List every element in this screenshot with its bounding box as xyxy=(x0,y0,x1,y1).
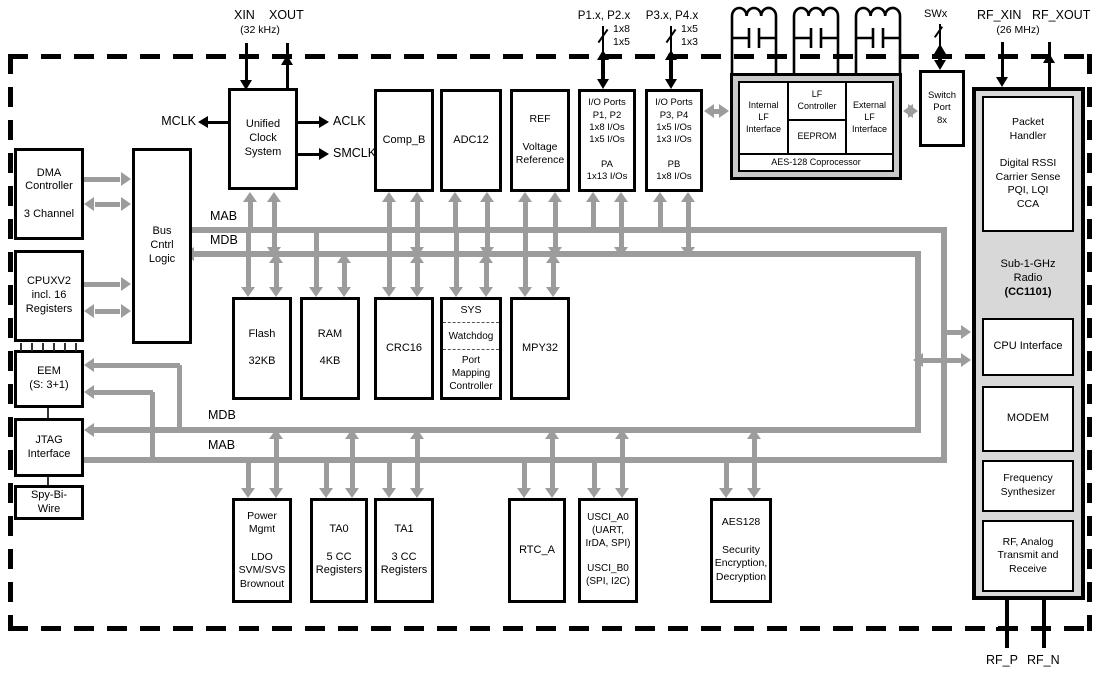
xin-pin-label: XIN xyxy=(234,8,255,22)
cpu-eem-tick xyxy=(64,343,66,351)
lf-aes-module-row: Internal LF Interface LF Controller EEPR… xyxy=(740,83,892,153)
arrowhead xyxy=(479,287,493,297)
chip-border-top xyxy=(8,54,1088,59)
wire xyxy=(1001,42,1004,82)
wire xyxy=(1042,600,1046,648)
usci-block: USCI_A0 (UART, IrDA, SPI) USCI_B0 (SPI, … xyxy=(578,498,638,603)
block-diagram: MAB MDB MDB MAB XIN XOUT (32 kHz) P1.x, … xyxy=(0,0,1100,677)
arrowhead xyxy=(449,287,463,297)
arrowhead xyxy=(269,253,283,263)
cpu-eem-tick xyxy=(20,343,22,351)
xtal-freq-label: (32 kHz) xyxy=(229,24,291,36)
rf-xout-pin-label: RF_XOUT xyxy=(1032,8,1090,22)
lf-controller-block: LF Controller xyxy=(789,83,845,121)
p3-p4-pin-label: P3.x, P4.x xyxy=(632,10,712,22)
wire xyxy=(592,459,597,489)
aes-128-coprocessor-caption: AES-128 Coprocessor xyxy=(740,153,892,170)
arrowhead xyxy=(410,429,424,439)
arrowhead xyxy=(410,253,424,263)
wire xyxy=(350,437,355,489)
wire xyxy=(94,363,180,368)
jtag-interface-block: JTAG Interface xyxy=(14,418,84,477)
eem-block: EEM (S: 3+1) xyxy=(14,350,84,408)
wire xyxy=(551,261,556,289)
arrowhead xyxy=(410,192,424,202)
arrowhead xyxy=(615,488,629,498)
arrowhead xyxy=(198,116,208,128)
arrowhead xyxy=(241,287,255,297)
wire xyxy=(619,200,624,249)
wire xyxy=(94,427,921,433)
arrowhead xyxy=(121,197,131,211)
arrowhead xyxy=(382,192,396,202)
arrowhead xyxy=(747,488,761,498)
arrowhead xyxy=(934,44,946,54)
rf-n-pin-label: RF_N xyxy=(1027,653,1060,667)
wire xyxy=(246,459,251,489)
wire xyxy=(686,200,691,249)
chip-border-left xyxy=(8,54,13,631)
arrowhead xyxy=(345,429,359,439)
wire xyxy=(274,437,279,489)
wire xyxy=(298,121,320,124)
arrowhead xyxy=(269,429,283,439)
cpu-block: CPUXV2 incl. 16 Registers xyxy=(14,250,84,342)
chip-border-bottom xyxy=(8,626,1088,631)
sub-1ghz-radio-label: Sub-1-GHz Radio (CC1101) xyxy=(976,245,1080,311)
arrowhead xyxy=(908,104,918,118)
arrowhead xyxy=(480,192,494,202)
p1-p2-width2-label: 1x5 xyxy=(613,36,630,48)
wire xyxy=(192,227,947,233)
arrowhead xyxy=(719,104,729,118)
radio-part-number-label: (CC1101) xyxy=(1004,285,1051,299)
arrowhead xyxy=(121,304,131,318)
adc12-block: ADC12 xyxy=(440,89,502,192)
arrowhead xyxy=(615,429,629,439)
arrowhead xyxy=(337,253,351,263)
arrowhead xyxy=(681,247,695,257)
switch-port-block: Switch Port 8x xyxy=(919,70,965,147)
eem-jtag-link xyxy=(47,408,49,418)
unified-clock-system-block: Unified Clock System xyxy=(228,88,298,190)
wire xyxy=(314,229,319,289)
jtag-sbw-link xyxy=(47,477,49,485)
chip-border-right xyxy=(1087,54,1092,631)
arrowhead xyxy=(961,325,971,339)
watchdog-section: Watchdog xyxy=(443,323,499,350)
wire xyxy=(84,177,120,182)
wire xyxy=(274,261,279,289)
arrowhead xyxy=(747,429,761,439)
rf-analog-block: RF, Analog Transmit and Receive xyxy=(982,520,1074,592)
lf-controller-eeprom-column: LF Controller EEPROM xyxy=(789,83,847,153)
wire xyxy=(620,437,625,489)
arrowhead xyxy=(545,429,559,439)
arrowhead xyxy=(913,353,923,367)
wire xyxy=(342,261,347,289)
arrowhead xyxy=(319,148,329,160)
wire xyxy=(415,200,420,249)
wire xyxy=(286,43,289,90)
wire xyxy=(387,459,392,489)
arrowhead xyxy=(319,488,333,498)
ref-voltage-reference-block: REF Voltage Reference xyxy=(510,89,570,192)
p3-p4-width1-label: 1x5 xyxy=(681,23,698,35)
arrowhead xyxy=(614,247,628,257)
spy-bi-wire-block: Spy-Bi- Wire xyxy=(14,485,84,520)
arrowhead xyxy=(410,488,424,498)
arrowhead xyxy=(996,77,1008,87)
wire xyxy=(550,437,555,489)
wire xyxy=(298,153,320,156)
aes128-block: AES128 Security Encryption, Decryption xyxy=(710,498,772,603)
wire xyxy=(177,365,182,433)
arrowhead xyxy=(241,488,255,498)
arrowhead xyxy=(545,488,559,498)
wire xyxy=(484,261,489,289)
radio-name-label: Sub-1-GHz Radio xyxy=(1000,257,1055,286)
packet-handler-block: Packet Handler Digital RSSI Carrier Sens… xyxy=(982,96,1074,232)
crc16-block: CRC16 xyxy=(374,297,434,400)
wire xyxy=(84,282,120,287)
frequency-synthesizer-block: Frequency Synthesizer xyxy=(982,460,1074,512)
external-lf-interface-block: External LF Interface xyxy=(847,83,892,153)
arrowhead xyxy=(586,192,600,202)
io-ports-p3-p4-block: I/O Ports P3, P4 1x5 I/Os 1x3 I/Os PB 1x… xyxy=(645,89,703,192)
wire xyxy=(272,200,277,249)
mpy32-block: MPY32 xyxy=(510,297,570,400)
arrowhead xyxy=(267,192,281,202)
wire xyxy=(150,392,155,463)
wire xyxy=(591,200,596,233)
arrowhead xyxy=(961,353,971,367)
arrowhead xyxy=(84,358,94,372)
wire xyxy=(84,457,947,463)
arrowhead xyxy=(681,192,695,202)
wire xyxy=(95,309,120,314)
arrowhead xyxy=(653,192,667,202)
cpu-eem-tick xyxy=(75,343,77,351)
wire xyxy=(245,43,248,82)
wire xyxy=(523,229,528,289)
lf-antenna-lc-tanks xyxy=(728,2,904,74)
ram-block: RAM 4KB xyxy=(300,297,360,400)
arrowhead xyxy=(597,79,609,89)
ta1-block: TA1 3 CC Registers xyxy=(374,498,434,603)
mab-upper-label: MAB xyxy=(210,209,237,223)
rf-xin-pin-label: RF_XIN xyxy=(977,8,1021,22)
arrowhead xyxy=(587,488,601,498)
wire xyxy=(246,229,251,289)
arrowhead xyxy=(337,287,351,297)
wire xyxy=(923,358,963,363)
lf-aes-module-panel: Internal LF Interface LF Controller EEPR… xyxy=(738,81,894,172)
wire xyxy=(387,229,392,289)
arrowhead xyxy=(84,423,94,437)
wire xyxy=(941,227,947,463)
wire xyxy=(415,261,420,289)
aclk-label: ACLK xyxy=(333,114,366,128)
cpu-eem-tick xyxy=(42,343,44,351)
xout-pin-label: XOUT xyxy=(269,8,304,22)
p3-p4-width2-label: 1x3 xyxy=(681,36,698,48)
arrowhead xyxy=(84,197,94,211)
port-mapping-controller-section: Port Mapping Controller xyxy=(443,350,499,397)
wire xyxy=(95,202,120,207)
arrowhead xyxy=(546,253,560,263)
arrowhead xyxy=(382,488,396,498)
smclk-label: SMCLK xyxy=(333,146,376,160)
wire xyxy=(724,459,729,489)
bus-control-logic-block: Bus Cntrl Logic xyxy=(132,148,192,344)
mab-lower-label: MAB xyxy=(208,438,235,452)
mclk-label: MCLK xyxy=(148,114,196,128)
wire xyxy=(915,251,921,433)
arrowhead xyxy=(345,488,359,498)
arrowhead xyxy=(121,277,131,291)
internal-lf-interface-block: Internal LF Interface xyxy=(740,83,789,153)
arrowhead xyxy=(719,488,733,498)
arrowhead xyxy=(269,287,283,297)
modem-block: MODEM xyxy=(982,386,1074,452)
arrowhead xyxy=(309,287,323,297)
eeprom-block: EEPROM xyxy=(789,121,845,153)
flash-block: Flash 32KB xyxy=(232,297,292,400)
rf-freq-label: (26 MHz) xyxy=(988,24,1048,36)
sys-section: SYS xyxy=(443,300,499,323)
arrowhead xyxy=(84,385,94,399)
wire xyxy=(752,437,757,489)
arrowhead xyxy=(319,116,329,128)
wire xyxy=(206,121,230,124)
sys-block: SYS Watchdog Port Mapping Controller xyxy=(440,297,502,400)
wire xyxy=(324,459,329,489)
cpu-interface-block: CPU Interface xyxy=(982,318,1074,376)
arrowhead xyxy=(121,172,131,186)
wire xyxy=(415,437,420,489)
wire xyxy=(485,200,490,249)
arrowhead xyxy=(934,60,946,70)
arrowhead xyxy=(518,287,532,297)
rf-p-pin-label: RF_P xyxy=(986,653,1018,667)
comp-b-block: Comp_B xyxy=(374,89,434,192)
wire xyxy=(94,390,153,395)
arrowhead xyxy=(518,192,532,202)
cpu-eem-tick xyxy=(31,343,33,351)
wire xyxy=(1005,600,1009,648)
arrowhead xyxy=(517,488,531,498)
arrowhead xyxy=(665,79,677,89)
wire xyxy=(454,229,459,289)
arrowhead xyxy=(548,192,562,202)
arrowhead xyxy=(269,488,283,498)
lf-aes-module: Internal LF Interface LF Controller EEPR… xyxy=(730,73,902,180)
arrowhead xyxy=(614,192,628,202)
arrowhead xyxy=(704,104,714,118)
arrowhead xyxy=(243,192,257,202)
arrowhead xyxy=(448,192,462,202)
arrowhead xyxy=(84,304,94,318)
cpu-eem-tick xyxy=(53,343,55,351)
wire xyxy=(553,200,558,249)
wire xyxy=(658,200,663,233)
arrowhead xyxy=(410,287,424,297)
ta0-block: TA0 5 CC Registers xyxy=(310,498,368,603)
power-mgmt-block: Power Mgmt LDO SVM/SVS Brownout xyxy=(232,498,292,603)
io-ports-p1-p2-block: I/O Ports P1, P2 1x8 I/Os 1x5 I/Os PA 1x… xyxy=(578,89,636,192)
arrowhead xyxy=(479,253,493,263)
wire xyxy=(522,459,527,489)
mdb-upper-label: MDB xyxy=(210,233,238,247)
swx-pin-label: SWx xyxy=(924,8,947,20)
dma-controller-block: DMA Controller 3 Channel xyxy=(14,148,84,240)
arrowhead xyxy=(382,287,396,297)
arrowhead xyxy=(546,287,560,297)
rtc-a-block: RTC_A xyxy=(508,498,566,603)
p1-p2-width1-label: 1x8 xyxy=(613,23,630,35)
wire xyxy=(1048,42,1051,87)
mdb-lower-label: MDB xyxy=(208,408,236,422)
